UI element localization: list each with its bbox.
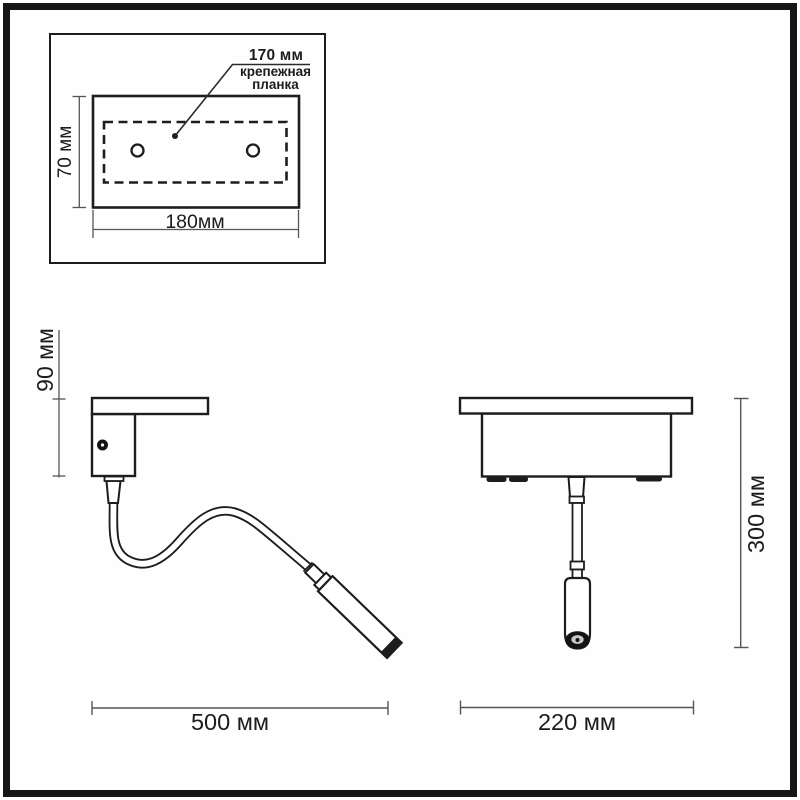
gooseneck-arm-outline — [113, 490, 308, 567]
front-view-drawing — [460, 398, 749, 715]
side-reach-label: 500 мм — [165, 709, 295, 736]
foot-right — [636, 477, 662, 482]
hole-spacing-label: 170 мм — [236, 47, 316, 65]
bracket-box-front — [482, 414, 671, 477]
mounting-hole-right — [247, 145, 259, 157]
lamp-technical-drawing — [0, 0, 800, 800]
mounting-bracket-label-line2: планка — [225, 79, 326, 92]
gooseneck-arm-core — [113, 490, 308, 567]
foot-left-2 — [509, 477, 528, 483]
front-width-label: 220 мм — [512, 709, 642, 736]
stem-tube-front — [573, 503, 583, 563]
stem-taper-front — [569, 477, 585, 497]
lens-center-dot — [576, 638, 580, 642]
plate-width-label: 180мм — [150, 211, 240, 234]
plate-height-label: 70 мм — [55, 107, 75, 197]
head-collar-front — [571, 562, 585, 570]
front-height-label: 300 мм — [743, 459, 769, 569]
stem-taper — [107, 481, 121, 503]
side-view-drawing — [53, 330, 402, 715]
mounting-bracket-label: крепежная планка — [225, 66, 326, 91]
foot-left-1 — [487, 477, 507, 483]
shelf-plate-front — [460, 398, 692, 414]
lamp-head-side — [302, 561, 401, 658]
switch-button-center — [101, 443, 104, 446]
bracket-height-label: 90 мм — [32, 310, 56, 410]
mounting-plate-outline — [93, 96, 299, 208]
dimension-drawing-page: 170 мм крепежная планка 70 мм 180мм 90 м… — [0, 0, 800, 800]
shelf-plate-side — [92, 398, 208, 414]
stem-band-front — [570, 497, 585, 504]
mounting-hole-left — [132, 145, 144, 157]
